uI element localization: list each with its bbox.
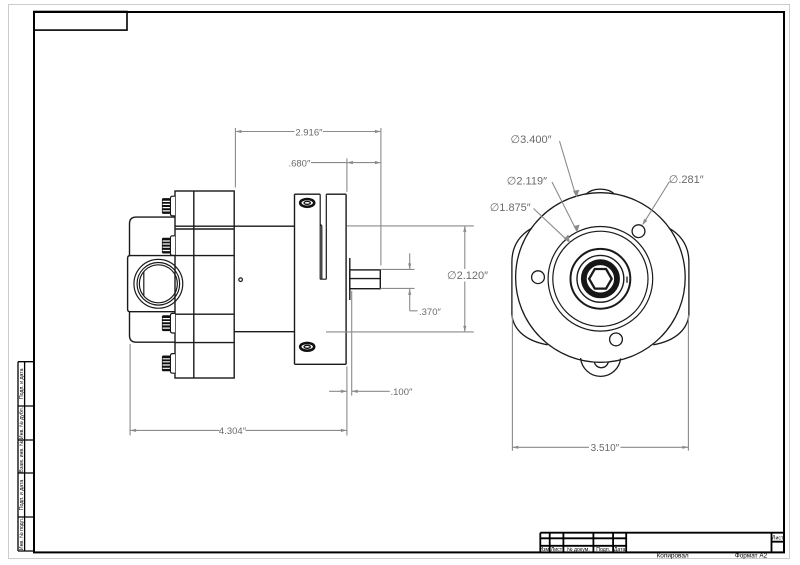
svg-text:Подп. и дата: Подп. и дата: [19, 368, 25, 399]
svg-text:.370″: .370″: [419, 307, 441, 318]
svg-text:∅.281″: ∅.281″: [669, 174, 704, 186]
svg-text:.100″: .100″: [391, 387, 413, 398]
svg-text:Лист: Лист: [551, 547, 563, 553]
svg-text:№ докум.: № докум.: [567, 547, 590, 553]
svg-text:2.916″: 2.916″: [295, 128, 323, 139]
svg-text:4.304″: 4.304″: [219, 426, 247, 437]
svg-text:3.510″: 3.510″: [591, 443, 620, 454]
svg-text:Лист: Лист: [772, 536, 784, 542]
svg-text:∅2.119″: ∅2.119″: [507, 175, 547, 187]
svg-text:Изм.: Изм.: [539, 547, 550, 553]
svg-text:Инв. № дубл.: Инв. № дубл.: [19, 407, 25, 439]
svg-text:∅3.400″: ∅3.400″: [510, 134, 551, 146]
svg-text:Формат А2: Формат А2: [735, 552, 768, 559]
svg-text:Дата: Дата: [614, 547, 626, 553]
svg-text:Инв. № подл.: Инв. № подл.: [19, 518, 25, 550]
svg-text:∅1.875″: ∅1.875″: [490, 202, 531, 214]
svg-text:∅2.120″: ∅2.120″: [447, 270, 488, 282]
svg-text:Подп.: Подп.: [596, 547, 610, 553]
svg-text:.680″: .680″: [288, 158, 310, 169]
svg-text:Взам. инв. №: Взам. инв. №: [19, 440, 25, 473]
svg-text:Копировал: Копировал: [657, 552, 689, 559]
svg-text:Подп. и дата: Подп. и дата: [19, 480, 25, 511]
